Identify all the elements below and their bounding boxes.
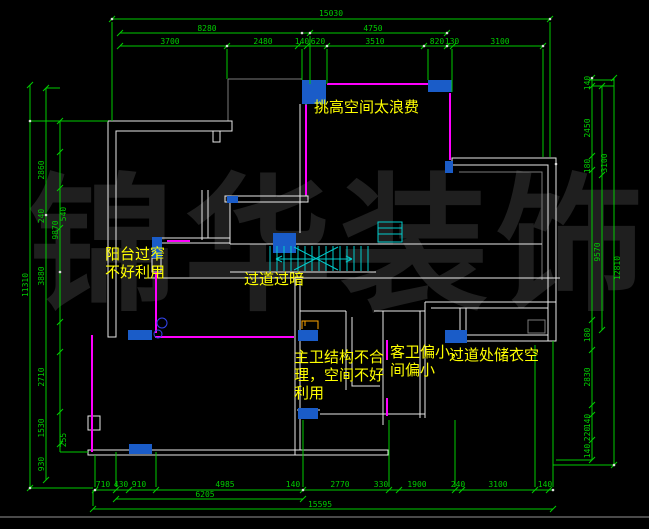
dim-label: 910 xyxy=(132,480,147,489)
note-master-bath: 主卫结构不合 理，空间不好 利用 xyxy=(294,349,384,403)
dim-label: 820 xyxy=(430,37,445,46)
dim-label: 240 xyxy=(37,209,46,224)
note-wardrobe: 过道处储衣空 xyxy=(449,347,539,365)
dim-label: 330 xyxy=(374,480,389,489)
floorplan-drawing: 15030 8280 4750 3700 2480 140 620 3510 8… xyxy=(0,0,649,529)
dim-label: 620 xyxy=(311,37,326,46)
dim-label: 1900 xyxy=(407,480,426,489)
dim-label: 2450 xyxy=(583,118,592,137)
dim-label: 3100 xyxy=(488,480,507,489)
dim-label: 3510 xyxy=(365,37,384,46)
dim-label: 2770 xyxy=(330,480,349,489)
dim-label: 1530 xyxy=(37,418,46,437)
dim-label: 710 xyxy=(96,480,111,489)
dim-label: 140 xyxy=(295,37,310,46)
dim-label: 8280 xyxy=(197,24,216,33)
roof-outline xyxy=(228,79,545,333)
dim-label: 15595 xyxy=(308,500,332,509)
dim-label: 130 xyxy=(445,37,460,46)
dim-label: 2860 xyxy=(37,160,46,179)
note-high-space: 挑高空间太浪费 xyxy=(314,99,419,117)
dim-label: 140 xyxy=(538,480,553,489)
dim-label: 3100 xyxy=(490,37,509,46)
dim-label: 4750 xyxy=(363,24,382,33)
dim-label: 140 xyxy=(583,76,592,91)
dim-label: 140 xyxy=(583,414,592,429)
dim-label: 2830 xyxy=(583,367,592,386)
dim-label: 11310 xyxy=(21,273,30,297)
dim-label: 930 xyxy=(37,457,46,472)
dim-label: 140 xyxy=(286,480,301,489)
dim-label: 9870 xyxy=(51,220,60,239)
dim-label: 2710 xyxy=(37,367,46,386)
dim-label: 430 xyxy=(114,480,129,489)
note-corridor: 过道过暗 xyxy=(244,271,304,289)
dim-label: 180 xyxy=(583,159,592,174)
dim-label: 180 xyxy=(583,328,592,343)
cad-viewport[interactable]: 锦华装饰 xyxy=(0,0,649,529)
dim-label: 3100 xyxy=(600,153,609,172)
dim-label: 220 xyxy=(583,427,592,442)
dim-label: 255 xyxy=(59,433,68,448)
note-balcony: 阳台过窄 不好利用 xyxy=(105,246,165,282)
dim-label: 12810 xyxy=(613,256,622,280)
dim-label: 4985 xyxy=(215,480,234,489)
dim-label: 3700 xyxy=(160,37,179,46)
dim-label: 240 xyxy=(451,480,466,489)
dim-label: 2480 xyxy=(253,37,272,46)
dim-label: 6205 xyxy=(195,490,214,499)
dim-label: 540 xyxy=(59,207,68,222)
dim-label: 3880 xyxy=(37,266,46,285)
dim-label: 15030 xyxy=(319,9,343,18)
dim-label: 140 xyxy=(583,444,592,459)
dim-label: 9570 xyxy=(593,242,602,261)
fixture xyxy=(302,321,318,329)
